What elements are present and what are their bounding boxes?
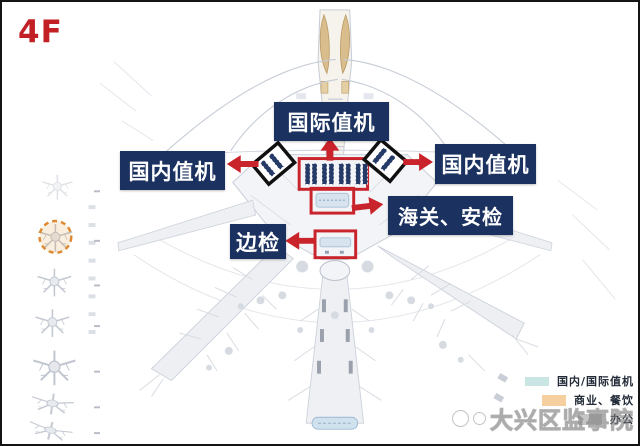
callout-international-checkin: 国际值机 (274, 102, 389, 141)
legend-swatch-checkin (525, 377, 549, 386)
watermark: 大兴区监事院 (452, 401, 634, 435)
legend-label-checkin: 国内/国际值机 (557, 373, 634, 389)
watermark-logo-circle-icon (452, 410, 469, 427)
current-floor-highlight-circle (40, 221, 72, 253)
callout-border-inspection: 边检 (230, 224, 286, 259)
north-pier (318, 10, 352, 167)
callout-customs-security: 海关、安检 (388, 196, 513, 235)
floor-label: 4F (18, 14, 63, 50)
floor-stack-thumbnails (27, 175, 100, 444)
south-pier (288, 261, 381, 429)
callout-domestic-checkin-right: 国内值机 (435, 144, 536, 184)
legend-row-checkin: 国内/国际值机 (484, 373, 634, 389)
southwest-pier (140, 246, 294, 397)
slide: 4F 国际值机 国内值机 国内值机 海关、安检 边检 国内/国际值机 商业、餐饮… (0, 0, 640, 446)
watermark-logo-circle-icon (473, 412, 486, 425)
callout-domestic-checkin-left: 国内值机 (120, 151, 225, 190)
watermark-text: 大兴区监事院 (490, 401, 634, 435)
